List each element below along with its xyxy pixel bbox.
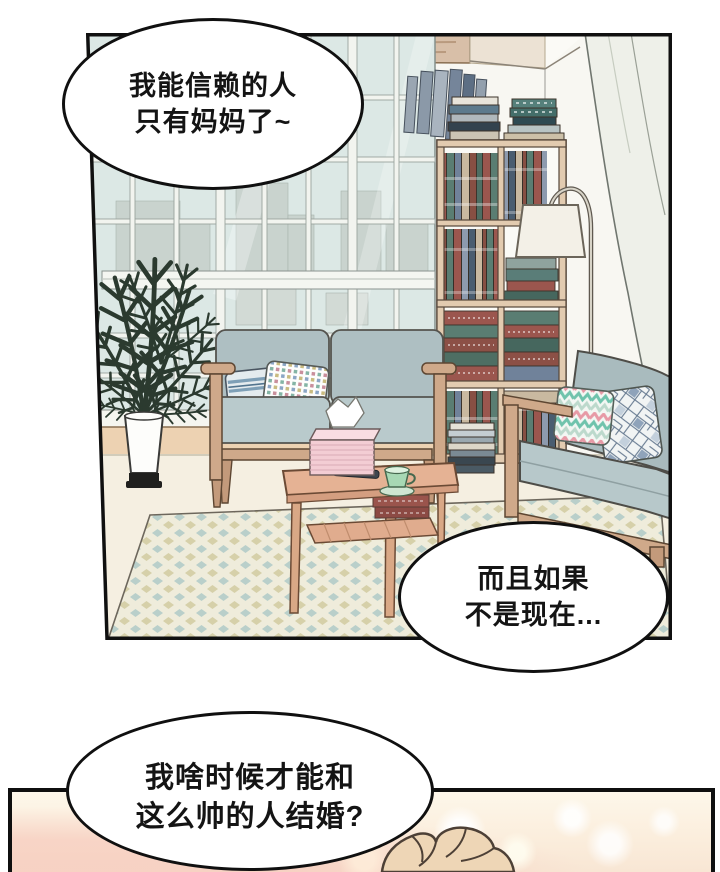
speech-bubble-3: 我啥时候才能和 这么帅的人结婚?	[66, 711, 434, 871]
speech-bubble-2-line-1: 而且如果	[478, 561, 590, 597]
speech-bubble-3-line-1: 我啥时候才能和	[145, 759, 355, 798]
speech-bubble-2-line-2: 不是现在...	[465, 597, 603, 633]
speech-bubble-1-line-2: 只有妈妈了~	[135, 104, 292, 140]
speech-bubble-1-line-1: 我能信赖的人	[129, 68, 297, 104]
speech-bubble-2: 而且如果 不是现在...	[398, 521, 669, 673]
webtoon-page: 我能信赖的人 只有妈妈了~ 而且如果 不是现在... 我啥时候才能和 这么帅的人…	[0, 0, 720, 872]
lamp-shade	[516, 205, 585, 257]
book-stack-top-right	[504, 99, 564, 141]
book-stack-top-left	[448, 97, 500, 140]
speech-bubble-3-line-2: 这么帅的人结婚?	[136, 798, 365, 837]
plant-pot	[125, 412, 163, 488]
books-under-table	[373, 495, 429, 518]
speech-bubble-1: 我能信赖的人 只有妈妈了~	[62, 18, 364, 190]
